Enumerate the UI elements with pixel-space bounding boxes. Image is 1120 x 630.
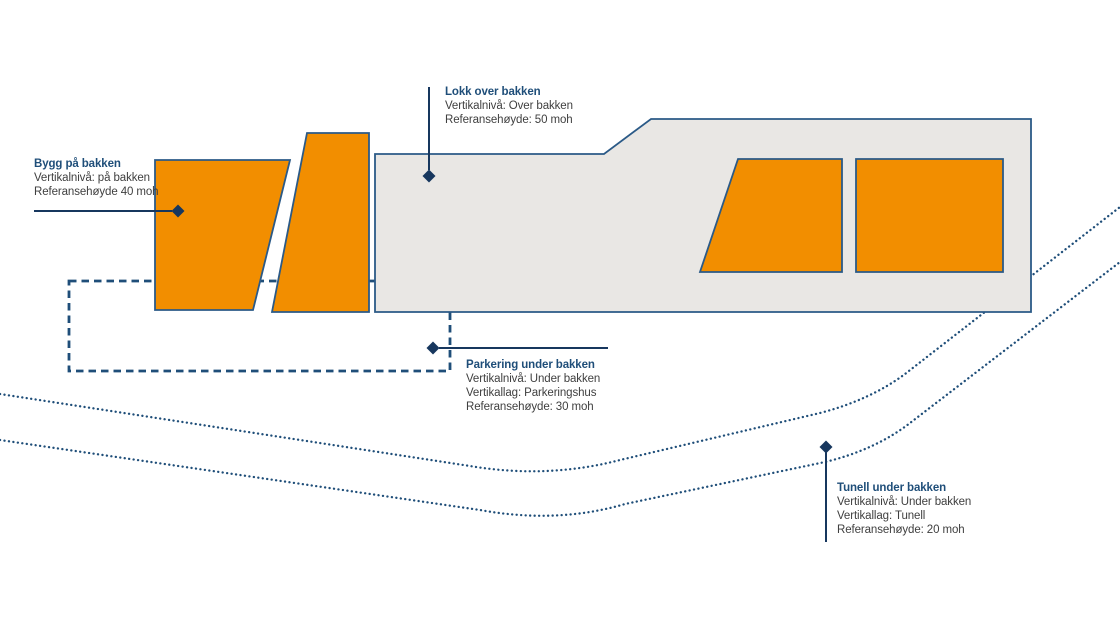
- tunell-callout-line-3: Referansehøyde: 20 moh: [837, 523, 971, 537]
- tunell-callout-title: Tunell under bakken: [837, 481, 971, 495]
- parkering-callout-title: Parkering under bakken: [466, 358, 600, 372]
- building-on-deck-right-shape: [856, 159, 1003, 272]
- parkering-callout-line-1: Vertikalnivå: Under bakken: [466, 372, 600, 386]
- lokk-callout-label: Lokk over bakken Vertikalnivå: Over bakk…: [445, 85, 573, 127]
- tunell-callout-line-2: Vertikallag: Tunell: [837, 509, 971, 523]
- parkering-callout-line-2: Vertikallag: Parkeringshus: [466, 386, 600, 400]
- lokk-callout-line-2: Referansehøyde: 50 moh: [445, 113, 573, 127]
- tunell-callout-diamond-icon: [820, 441, 833, 454]
- building-on-ground-left-shape: [155, 160, 290, 310]
- lokk-callout-line-1: Vertikalnivå: Over bakken: [445, 99, 573, 113]
- bygg-callout-title: Bygg på bakken: [34, 157, 158, 171]
- parkering-callout-line-3: Referansehøyde: 30 moh: [466, 400, 600, 414]
- parkering-callout-diamond-icon: [427, 342, 440, 355]
- parkering-callout-label: Parkering under bakken Vertikalnivå: Und…: [466, 358, 600, 414]
- bygg-callout-line-2: Referansehøyde 40 moh: [34, 185, 158, 199]
- lokk-callout-title: Lokk over bakken: [445, 85, 573, 99]
- bygg-callout-label: Bygg på bakken Vertikalnivå: på bakken R…: [34, 157, 158, 199]
- vertical-levels-diagram: Bygg på bakken Vertikalnivå: på bakken R…: [0, 0, 1120, 630]
- bygg-callout-line-1: Vertikalnivå: på bakken: [34, 171, 158, 185]
- tunell-callout-line-1: Vertikalnivå: Under bakken: [837, 495, 971, 509]
- tunell-callout-label: Tunell under bakken Vertikalnivå: Under …: [837, 481, 971, 537]
